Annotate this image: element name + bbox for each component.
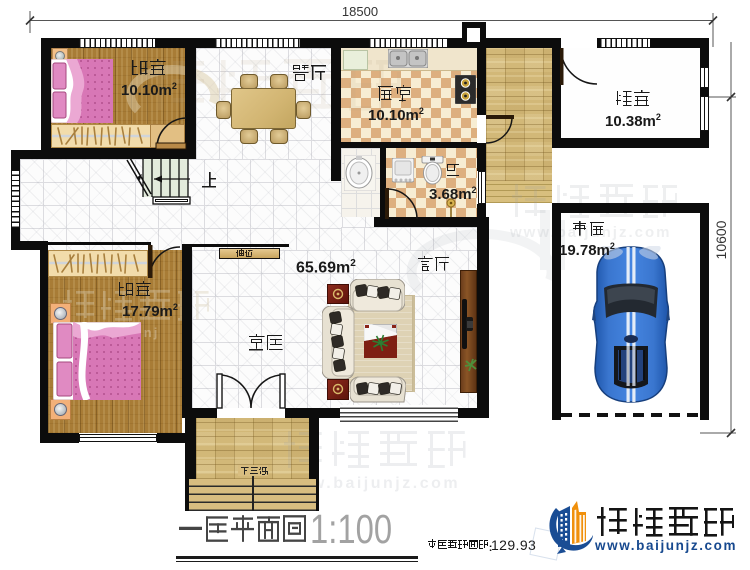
svg-text:18500: 18500: [342, 4, 378, 19]
svg-text:10600: 10600: [713, 220, 729, 259]
